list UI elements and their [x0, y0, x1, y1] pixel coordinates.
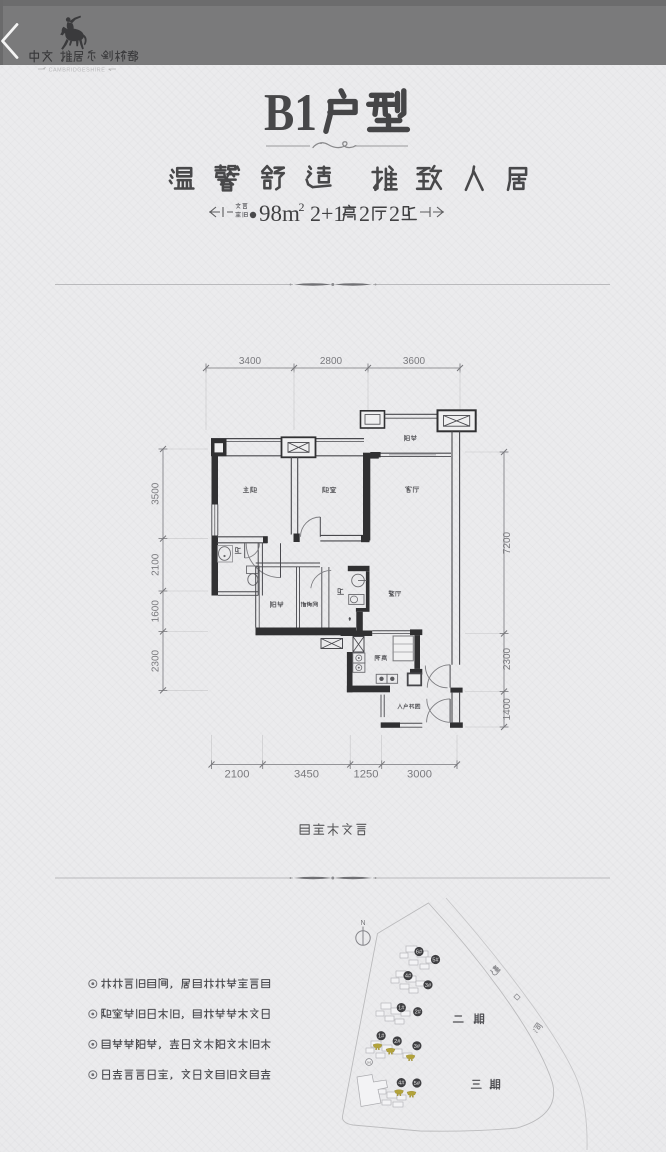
svg-text:2800: 2800: [320, 356, 343, 367]
svg-text:3400: 3400: [239, 356, 262, 367]
svg-text:2: 2: [359, 201, 370, 226]
svg-text:2300: 2300: [502, 647, 513, 670]
svg-text:1#: 1#: [398, 1006, 405, 1012]
svg-text:2: 2: [389, 201, 400, 226]
svg-text:5#: 5#: [432, 958, 439, 964]
svg-text:1600: 1600: [151, 600, 162, 623]
svg-text:2#: 2#: [394, 1039, 401, 1045]
svg-text:6#: 6#: [416, 950, 423, 956]
svg-text:4#: 4#: [398, 1081, 405, 1087]
svg-text:3600: 3600: [403, 356, 426, 367]
svg-text:3450: 3450: [294, 769, 319, 781]
svg-text:4#: 4#: [405, 974, 412, 980]
svg-text:3500: 3500: [151, 482, 162, 505]
svg-text:3#: 3#: [425, 983, 432, 989]
svg-text:2#: 2#: [415, 1010, 422, 1016]
svg-text:N: N: [360, 920, 365, 927]
svg-text:3000: 3000: [407, 769, 432, 781]
svg-text:2+1: 2+1: [310, 201, 344, 226]
svg-text:1400: 1400: [502, 698, 513, 721]
svg-text:B1: B1: [264, 84, 317, 142]
svg-text:7200: 7200: [502, 531, 513, 554]
svg-text:2300: 2300: [151, 649, 162, 672]
svg-text:1250: 1250: [354, 769, 379, 781]
svg-text:2100: 2100: [151, 553, 162, 576]
svg-text:5#: 5#: [414, 1081, 421, 1087]
svg-text:CAMBRIDGESHIRE: CAMBRIDGESHIRE: [49, 68, 106, 74]
svg-text:2: 2: [299, 200, 305, 214]
svg-text:1#: 1#: [378, 1034, 385, 1040]
svg-text:2100: 2100: [225, 769, 250, 781]
svg-text:H: H: [367, 1060, 370, 1065]
svg-text:98m: 98m: [259, 201, 300, 226]
svg-text:3#: 3#: [414, 1044, 421, 1050]
